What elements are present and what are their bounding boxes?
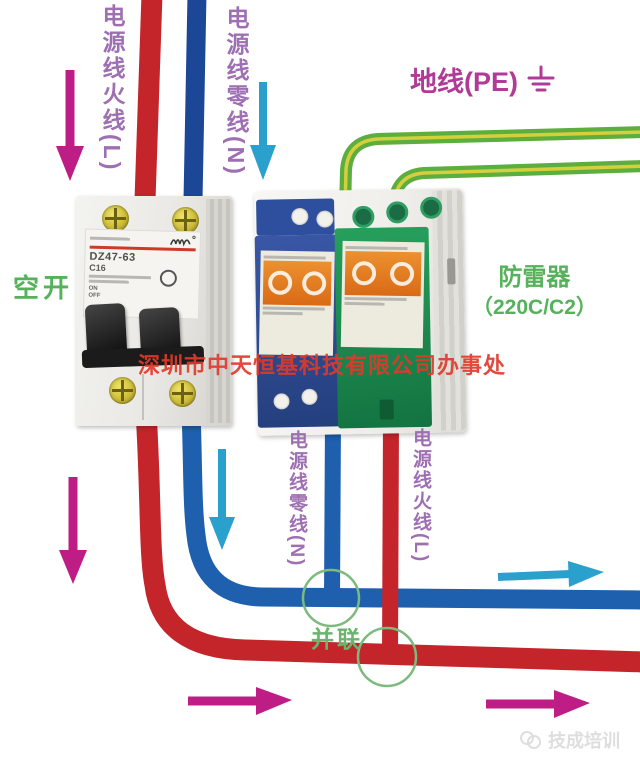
earth-ground-icon [526,65,556,95]
brand-logo [170,234,196,247]
spd-live-wire [390,418,391,660]
spd-green-indicator-ring-1 [352,261,376,285]
label-live-in: 电源线火线(L) [95,4,129,172]
down-arrow-neutral-top-head [250,145,276,180]
label-live-out: 电源线火线(L) [407,428,434,563]
breaker-rating: C16 [89,263,195,276]
spd-green-text-bar-3 [345,302,385,306]
spd-blue-text-bar-3 [263,312,303,316]
label-ground: 地线(PE) [410,60,556,99]
wiring-diagram: DZ47-63 C16 ON OFF [0,0,640,769]
label-spd-name-line1: 防雷器 [472,262,597,294]
breaker-onoff-markers: ON OFF [88,286,194,302]
brand-watermark-text: 技成培训 [548,727,620,753]
spd-blue-indicator-window [263,261,332,306]
spd-blue-indicator-ring-1 [268,271,292,295]
breaker-seam-line [142,374,144,420]
neutral-supply-wire [193,0,197,200]
spd-side-face [432,190,466,430]
label-neutral-out: 电源线零线(N) [283,430,310,567]
label-parallel: 并联 [311,620,363,654]
spd-blue-text-bar-2 [263,307,325,311]
breaker-brand-row [90,232,196,248]
breaker-din-side [206,199,232,423]
spd-green-indicator-ring-2 [390,262,414,286]
right-arrow-neutral [498,574,570,577]
label-breaker-name: 空开 [13,268,73,305]
surge-protector [254,188,466,436]
spd-neutral-wire [332,418,333,599]
spd-blue-label-card [259,250,335,355]
spd-cartridge-blue[interactable] [255,234,340,427]
spd-green-indicator-window [345,251,422,296]
label-ground-text: 地线(PE) [410,60,518,99]
label-spd-name-line2: （220C/C2） [472,294,597,322]
spd-green-label-card [341,241,425,348]
live-supply-wire [145,0,152,200]
certification-mark-icon [160,269,177,286]
breaker-spec-bar-1 [89,275,151,280]
breaker-terminal-screw-bottom-left [109,377,136,404]
right-arrow-live-1-head [256,687,292,715]
breaker-spec-bar-2 [89,280,129,284]
spd-cartridge-green[interactable] [335,227,432,429]
down-arrow-live-top-head [56,146,84,181]
circuit-breaker: DZ47-63 C16 ON OFF [76,196,232,426]
breaker-brand-text-bar [90,237,130,241]
spd-vent-slot [447,258,455,284]
breaker-terminal-screw-top-left [102,205,129,232]
brand-watermark: 技成培训 [518,727,620,753]
brand-watermark-logo-icon [518,730,544,750]
right-arrow-live-2-head [554,690,590,718]
right-arrow-neutral-head [568,561,604,587]
company-watermark: 深圳市中天恒基科技有限公司办事处 [138,348,506,380]
down-arrow-neutral-bottom-head [209,517,235,550]
breaker-terminal-screw-bottom-right [169,380,196,407]
spd-green-text-bar-1 [345,246,407,250]
spd-blue-bottom-terminal-1 [273,393,289,409]
label-neutral-in: 电源线零线(N) [219,6,253,177]
spd-blue-text-bar-1 [264,256,326,260]
spd-blue-indicator-ring-2 [302,271,326,295]
spd-blue-bottom-terminal-2 [301,389,317,405]
spd-green-text-bar-2 [345,297,407,301]
down-arrow-live-bottom-head [59,550,87,584]
label-spd-name: 防雷器 （220C/C2） [472,262,597,323]
spd-green-bottom-slot [380,399,394,419]
